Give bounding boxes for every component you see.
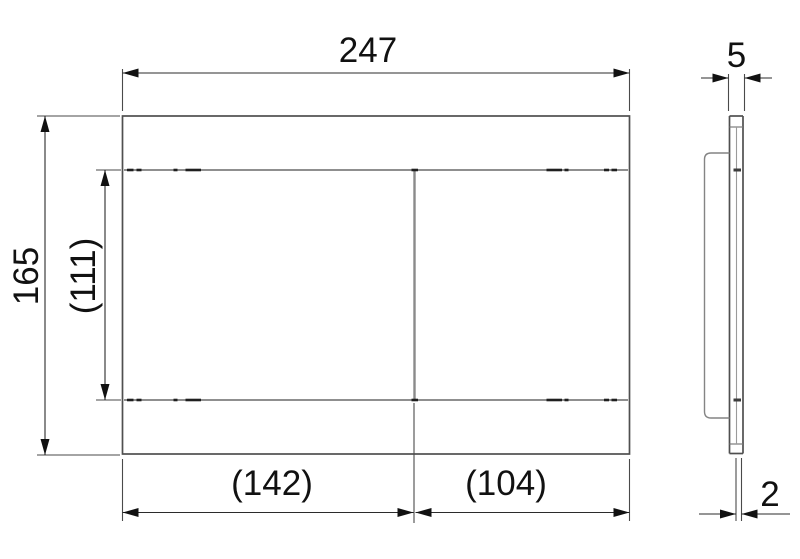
small-button-width-label: (104) bbox=[465, 464, 547, 503]
arrowhead-right bbox=[614, 508, 630, 517]
arrowhead-right bbox=[398, 508, 414, 517]
plate-outline bbox=[123, 116, 630, 454]
arrowhead-left bbox=[123, 508, 139, 517]
arrowhead-left bbox=[416, 508, 432, 517]
overall-width-label: 247 bbox=[339, 31, 397, 70]
front-view bbox=[123, 116, 630, 454]
arrowhead-bottom bbox=[41, 439, 50, 455]
dim-large-button-width: (142) bbox=[123, 403, 415, 523]
side-view bbox=[705, 116, 744, 454]
side-plate-profile bbox=[730, 116, 744, 454]
technical-drawing: 247 165 (111) (142) (104) bbox=[0, 0, 800, 559]
button-protrusion-label: 2 bbox=[760, 475, 779, 514]
drawing-canvas: 247 165 (111) (142) (104) bbox=[0, 0, 800, 559]
arrowhead-top bbox=[41, 116, 50, 132]
arrowhead-right bbox=[614, 69, 630, 78]
dim-overall-width: 247 bbox=[123, 31, 630, 111]
arrowhead-top bbox=[101, 170, 110, 186]
dim-small-button-width: (104) bbox=[416, 459, 630, 521]
arrowhead-left bbox=[720, 510, 736, 519]
dim-button-protrusion: 2 bbox=[699, 458, 790, 521]
arrowhead-bottom bbox=[101, 384, 110, 400]
arrowhead-left bbox=[123, 69, 139, 78]
arrowhead-right bbox=[742, 510, 758, 519]
mounting-frame-profile bbox=[705, 153, 730, 418]
plate-thickness-label: 5 bbox=[727, 36, 746, 75]
buttons-height-label: (111) bbox=[64, 238, 103, 315]
dim-buttons-height: (111) bbox=[64, 170, 121, 400]
large-button-width-label: (142) bbox=[231, 464, 313, 503]
dim-plate-thickness: 5 bbox=[701, 36, 772, 111]
overall-height-label: 165 bbox=[7, 247, 46, 305]
arrowhead-right bbox=[745, 74, 761, 83]
